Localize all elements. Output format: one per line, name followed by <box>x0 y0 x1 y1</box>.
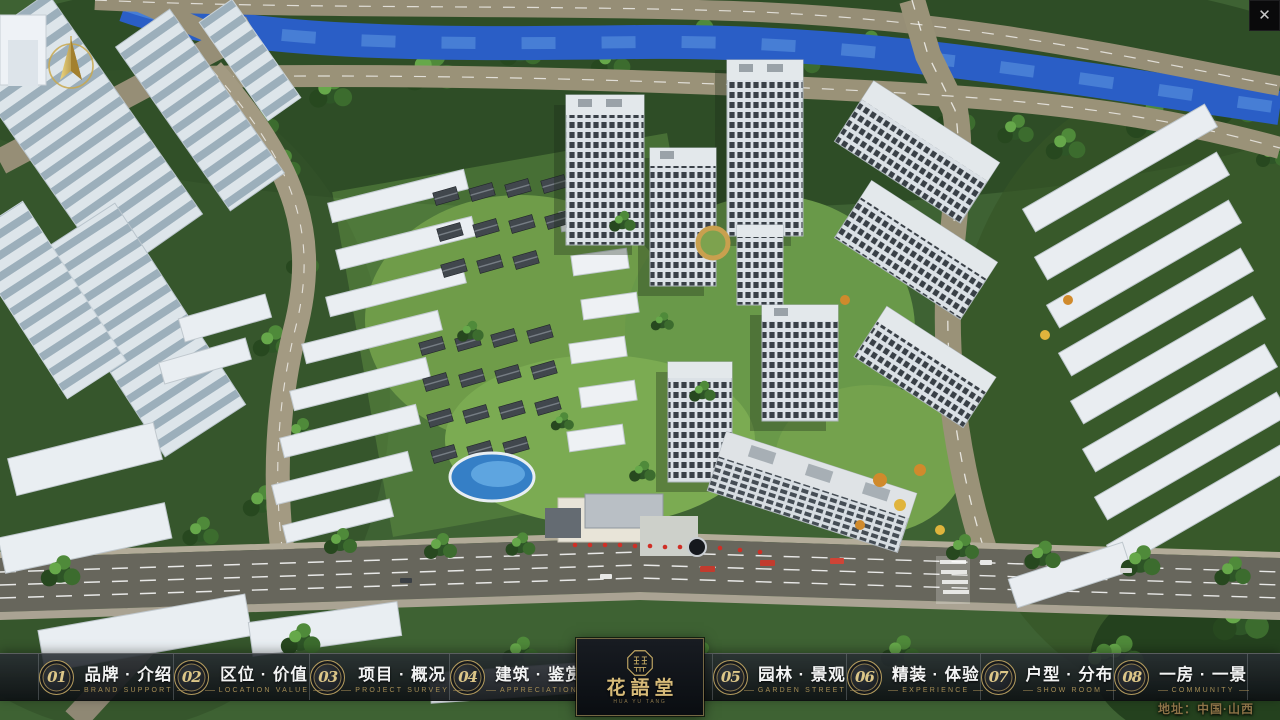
nav-number: 01 <box>47 668 66 686</box>
nav-badge-08: 08 <box>1114 660 1149 695</box>
nav-label-en: COMMUNITY <box>1172 687 1235 694</box>
nav-number: 05 <box>721 668 740 686</box>
compass-icon <box>42 30 100 94</box>
nav-label-zh: 户型 · 分布 <box>1026 661 1114 685</box>
navbar-left-edge <box>0 654 38 700</box>
navbar-right-edge <box>1247 654 1280 700</box>
presentation-stage: ✕ 01 品牌 · 介绍 BRAND SUPPORT 02 区位 · 价值 LO… <box>0 0 1280 720</box>
nav-item-interior-experience[interactable]: 06 精装 · 体验 EXPERIENCE <box>846 654 980 700</box>
nav-badge-05: 05 <box>713 660 748 695</box>
nav-label-zh: 项目 · 概况 <box>358 661 446 685</box>
nav-number: 04 <box>458 668 477 686</box>
nav-label-zh: 区位 · 价值 <box>220 661 308 685</box>
nav-number: 07 <box>989 668 1008 686</box>
nav-label-en: SHOW ROOM <box>1037 687 1102 694</box>
nav-label-en: LOCATION VALUE <box>219 687 309 694</box>
project-logo-panel[interactable]: 花語堂 HUA YU TANG <box>576 638 704 716</box>
nav-item-floorplan-distribution[interactable]: 07 户型 · 分布 SHOW ROOM <box>980 654 1114 700</box>
nav-number: 08 <box>1122 668 1141 686</box>
nav-label-en: PROJECT SURVEY <box>355 687 449 694</box>
close-icon: ✕ <box>1258 8 1271 23</box>
nav-label-en: BRAND SUPPORT <box>84 687 173 694</box>
nav-item-location-value[interactable]: 02 区位 · 价值 LOCATION VALUE <box>173 654 309 700</box>
nav-badge-01: 01 <box>39 660 74 695</box>
nav-label-zh: 建筑 · 鉴赏 <box>495 661 583 685</box>
nav-item-project-overview[interactable]: 03 项目 · 概况 PROJECT SURVEY <box>309 654 449 700</box>
nav-label-en: APPRECIATION <box>500 687 578 694</box>
compass-north-indicator[interactable] <box>42 30 100 94</box>
water-pool <box>450 453 534 501</box>
masterplan-3d-view[interactable] <box>0 0 1280 720</box>
nav-number: 03 <box>318 668 337 686</box>
seal-icon <box>626 649 654 677</box>
nav-number: 06 <box>855 668 874 686</box>
nav-label-zh: 品牌 · 介绍 <box>85 661 173 685</box>
nav-item-architecture-appreciation[interactable]: 04 建筑 · 鉴赏 APPRECIATION <box>449 654 583 700</box>
project-address: 地址：中国·山西 <box>1158 700 1254 717</box>
nav-label-zh: 一房 · 一景 <box>1159 661 1247 685</box>
nav-label-zh: 园林 · 景观 <box>758 661 846 685</box>
project-subtitle: HUA YU TANG <box>613 700 666 705</box>
nav-number: 02 <box>182 668 201 686</box>
nav-item-garden-landscape[interactable]: 05 园林 · 景观 GARDEN STREET <box>712 654 846 700</box>
nav-item-one-room-one-view[interactable]: 08 一房 · 一景 COMMUNITY <box>1113 654 1247 700</box>
nav-item-brand-intro[interactable]: 01 品牌 · 介绍 BRAND SUPPORT <box>38 654 173 700</box>
close-button[interactable]: ✕ <box>1249 0 1280 31</box>
nav-label-en: EXPERIENCE <box>902 687 969 694</box>
nav-label-en: GARDEN STREET <box>758 687 846 694</box>
nav-badge-07: 07 <box>981 660 1016 695</box>
project-title: 花語堂 <box>601 679 678 698</box>
nav-label-zh: 精装 · 体验 <box>892 661 980 685</box>
